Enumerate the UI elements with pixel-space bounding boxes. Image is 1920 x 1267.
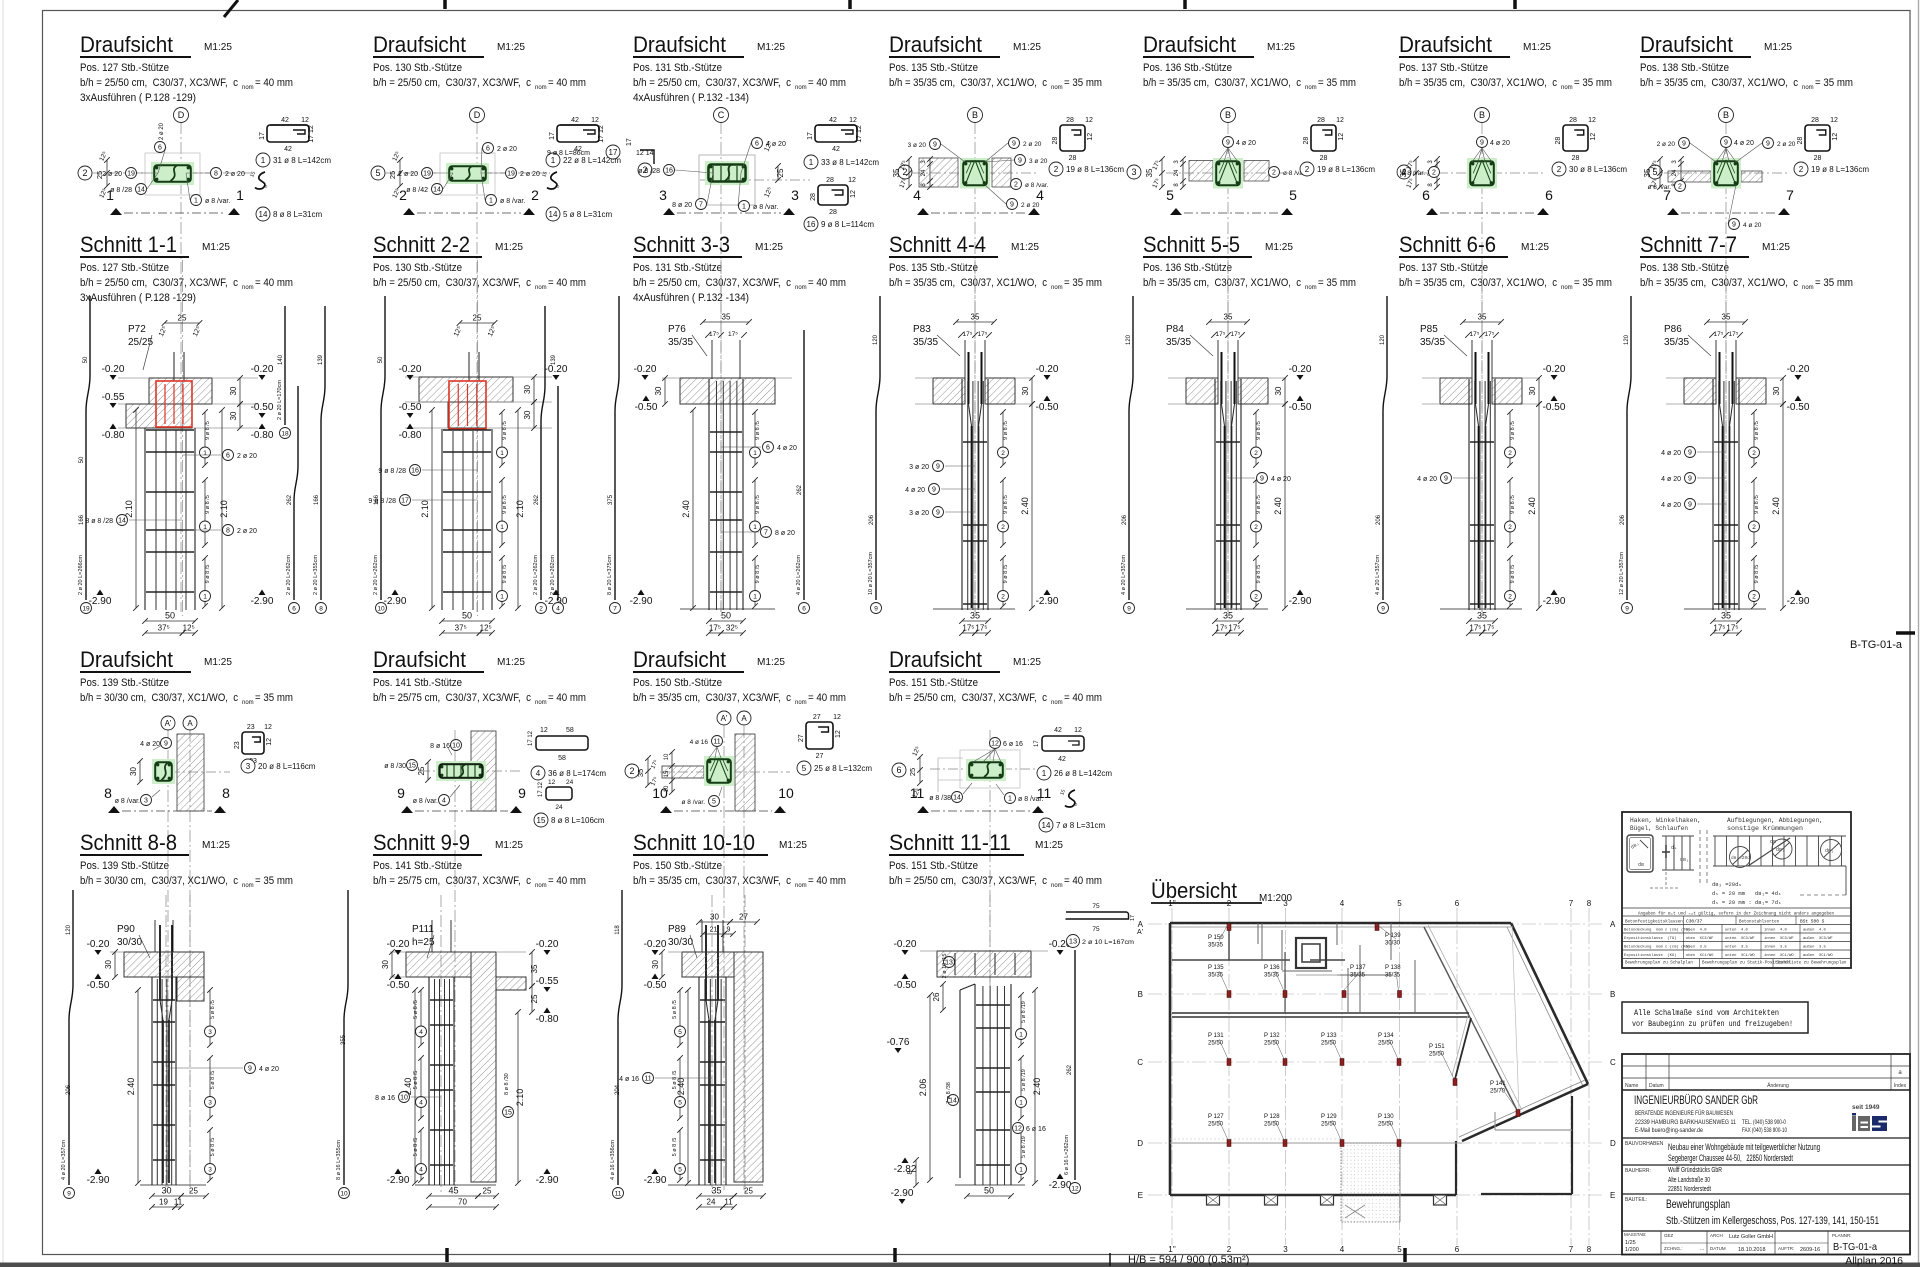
svg-text:24: 24 [921,169,927,176]
svg-text:17⁵: 17⁵ [1714,331,1724,338]
svg-text:vor Baubeginn zu prüfen und fr: vor Baubeginn zu prüfen und freizugeben! [1632,1019,1793,1029]
svg-text:118: 118 [615,925,621,935]
svg-text:30 ø 8 L=136cm: 30 ø 8 L=136cm [1569,165,1627,174]
svg-text:9: 9 [1226,139,1230,146]
svg-text:9: 9 [1010,201,1014,208]
svg-text:30: 30 [161,1186,171,1196]
svg-text:9: 9 [1682,140,1686,147]
svg-text:2: 2 [1254,524,1258,531]
svg-text:-0.80: -0.80 [536,1014,559,1025]
svg-text:25: 25 [388,171,397,179]
svg-text:11: 11 [713,738,720,745]
svg-text:außen 4.0: außen 4.0 [1803,928,1827,933]
svg-text:12: 12 [548,779,556,786]
svg-text:-0.80: -0.80 [251,430,274,441]
svg-text:12: 12 [266,738,273,746]
svg-text:45: 45 [448,1186,458,1196]
svg-text:-2.90: -2.90 [1036,596,1059,607]
svg-text:8 ø 8 /28: 8 ø 8 /28 [85,518,113,525]
svg-text:Pos. 135 Stb.-Stütze: Pos. 135 Stb.-Stütze [889,262,978,274]
svg-text:5 ø 8 /5: 5 ø 8 /5 [672,1000,678,1019]
svg-text:Betondeckung nom c (cm) (KG): Betondeckung nom c (cm) (KG) [1624,945,1690,950]
svg-text:ø 8 /var.: ø 8 /var. [500,198,525,205]
svg-text:2: 2 [1001,524,1005,531]
svg-text:2 ø 20: 2 ø 20 [102,171,122,178]
svg-text:17: 17 [807,132,814,140]
svg-text:18: 18 [281,430,289,437]
svg-text:28: 28 [810,193,817,201]
svg-text:1: 1 [753,593,757,600]
svg-text:DATUM: DATUM [1710,1246,1726,1251]
svg-text:M1:25: M1:25 [497,656,525,668]
svg-text:12: 12 [1071,1185,1079,1192]
svg-text:6: 6 [755,140,759,147]
svg-text:9 ø 8 /5: 9 ø 8 /5 [205,565,211,584]
svg-text:4 ø 20: 4 ø 20 [1734,140,1754,147]
svg-text:5 ø 8 /19: 5 ø 8 /19 [1021,1069,1027,1091]
svg-text:7 ø 8 /38: 7 ø 8 /38 [946,1082,952,1104]
svg-text:35: 35 [1477,611,1487,621]
svg-text:C: C [718,110,725,120]
svg-text:nom: nom [242,85,254,91]
svg-text:D: D [474,110,481,120]
svg-text:4 ø 20 L=357cm: 4 ø 20 L=357cm [61,1140,67,1180]
svg-text:PLANNR:: PLANNR: [1832,1233,1852,1238]
svg-text:25/50: 25/50 [1264,1041,1280,1047]
svg-text:Pos. 151 Stb.-Stütze: Pos. 151 Stb.-Stütze [889,860,978,872]
svg-text:unten XC3/WF: unten XC3/WF [1725,936,1755,941]
svg-text:42: 42 [281,117,289,124]
svg-text:Übersicht: Übersicht [1151,878,1237,903]
svg-text:21: 21 [710,927,718,934]
svg-text:58: 58 [566,727,574,734]
svg-text:12: 12 [1336,117,1344,124]
svg-text:8: 8 [1587,899,1592,908]
svg-text:2 ø 20: 2 ø 20 [159,122,165,140]
svg-text:17: 17 [1130,915,1136,921]
svg-text:-2.90: -2.90 [251,596,274,607]
svg-text:12⁵: 12⁵ [183,624,195,633]
svg-text:2: 2 [1254,450,1258,457]
svg-text:9: 9 [1688,475,1692,482]
svg-text:BAUHERR:: BAUHERR: [1625,1168,1651,1174]
svg-text:-0.20: -0.20 [634,364,657,375]
svg-text:b/h = 25/50 cm, C30/37, XC3/W: b/h = 25/50 cm, C30/37, XC3/WF, c [80,77,238,89]
svg-text:6: 6 [226,452,230,459]
svg-text:9 ø 8 /5: 9 ø 8 /5 [1003,565,1009,584]
svg-text:5: 5 [1289,187,1297,203]
svg-text:25/50: 25/50 [1378,1041,1394,1047]
svg-text:2 ø 20 L=355cm: 2 ø 20 L=355cm [313,555,319,595]
svg-text:P 141: P 141 [1490,1081,1506,1087]
svg-text:4 ø 20: 4 ø 20 [1271,476,1291,483]
svg-text:17⁵: 17⁵ [975,624,987,633]
svg-text:11: 11 [724,1198,733,1207]
svg-text:b/h = 35/35 cm, C30/37, XC1/W: b/h = 35/35 cm, C30/37, XC1/WO, c [1399,77,1557,89]
svg-text:17⁵: 17⁵ [728,331,738,338]
svg-text:8: 8 [214,170,218,177]
svg-text:23: 23 [247,724,255,731]
svg-text:28: 28 [1320,155,1328,162]
svg-text:Schnitt 2-2: Schnitt 2-2 [373,232,470,257]
svg-text:= 35 mm: = 35 mm [1064,77,1102,89]
svg-text:10: 10 [452,742,460,749]
svg-text:9: 9 [1480,139,1484,146]
svg-text:dʙ: dʙ [1638,862,1644,868]
svg-text:innen 3.5: innen 3.5 [1764,945,1788,950]
svg-text:12: 12 [1014,1125,1022,1132]
svg-text:BSt 500 S: BSt 500 S [1800,919,1825,925]
svg-text:10: 10 [664,753,670,760]
svg-text:Wulff Gründstücks GbR: Wulff Gründstücks GbR [1668,1165,1722,1174]
svg-text:12: 12 [1074,727,1082,734]
svg-text:2 ø 20: 2 ø 20 [398,171,418,178]
svg-text:1: 1 [261,156,266,165]
svg-text:ø 8 /var.: ø 8 /var. [413,798,438,805]
svg-text:7: 7 [699,201,703,208]
svg-text:Pos. 139 Stb.-Stütze: Pos. 139 Stb.-Stütze [80,677,169,689]
svg-text:B: B [1723,110,1729,120]
svg-text:b/h = 30/30 cm, C30/37, XC1/W: b/h = 30/30 cm, C30/37, XC1/WO, c [80,692,238,704]
svg-text:Draufsicht: Draufsicht [889,647,982,672]
svg-text:unten XC1/WO: unten XC1/WO [1725,953,1755,958]
svg-text:3 ø 20: 3 ø 20 [1029,158,1048,165]
svg-text:9 ø 8 /5: 9 ø 8 /5 [502,565,508,584]
svg-text:P83: P83 [913,324,931,335]
svg-text:-2.90: -2.90 [87,1175,110,1186]
svg-text:5 ø 8 /5: 5 ø 8 /5 [672,1138,678,1157]
svg-text:Pos. 131 Stb.-Stütze: Pos. 131 Stb.-Stütze [633,62,722,74]
svg-text:E-Mail buero@ing-sander.de: E-Mail buero@ing-sander.de [1635,1128,1704,1134]
svg-text:10: 10 [340,1190,348,1197]
svg-text:12: 12 [1085,117,1093,124]
svg-text:1: 1 [1019,1166,1023,1173]
svg-text:M1:25: M1:25 [497,41,525,53]
svg-text:4xAusführen ( P.132 -134): 4xAusführen ( P.132 -134) [633,292,749,304]
svg-text:17⁵: 17⁵ [978,331,988,338]
svg-text:9 ø 8 /5: 9 ø 8 /5 [1510,495,1516,514]
svg-text:3: 3 [791,187,799,203]
svg-text:2.40: 2.40 [126,1078,136,1096]
svg-text:6: 6 [1545,187,1553,203]
svg-text:Stahlliste zu Bewehrungsplan: Stahlliste zu Bewehrungsplan [1776,961,1847,966]
svg-text:30: 30 [381,960,390,969]
svg-text:9: 9 [397,785,405,801]
svg-text:25: 25 [744,1187,753,1196]
svg-text:35/35: 35/35 [1664,337,1689,348]
svg-text:24: 24 [566,779,574,786]
svg-text:19: 19 [423,170,431,177]
svg-text:= 40 mm: = 40 mm [255,77,293,89]
svg-text:AUFTR:: AUFTR: [1778,1246,1794,1251]
svg-text:P 128: P 128 [1264,1114,1280,1120]
svg-text:2 ø 20: 2 ø 20 [1657,141,1676,148]
svg-text:4 ø 20: 4 ø 20 [1490,140,1510,147]
svg-text:24: 24 [1672,169,1678,176]
svg-text:9 ø 8 /5: 9 ø 8 /5 [1003,495,1009,514]
svg-text:Bewehrungsplan zu Schalplan: Bewehrungsplan zu Schalplan [1625,961,1693,966]
svg-text:35: 35 [1722,313,1731,322]
svg-text:dʙ: dʙ [1770,839,1776,845]
svg-text:TEL. (040) 538 900-0: TEL. (040) 538 900-0 [1742,1120,1787,1126]
svg-text:9: 9 [936,509,940,516]
svg-text:= 35 mm: = 35 mm [255,875,293,887]
svg-text:1: 1 [194,197,198,204]
svg-text:9: 9 [1381,605,1385,612]
svg-text:ZCHNG.:: ZCHNG.: [1664,1246,1683,1251]
svg-text:A: A [741,714,747,723]
svg-text:262: 262 [287,494,293,505]
svg-text:120: 120 [1624,334,1630,345]
svg-text:oben XC3/WF: oben XC3/WF [1686,936,1714,941]
svg-text:innen XC1/WO: innen XC1/WO [1764,953,1794,958]
svg-text:17⁵: 17⁵ [1729,331,1739,338]
svg-text:6: 6 [1422,187,1430,203]
svg-text:5 ø 8 /5: 5 ø 8 /5 [413,1000,419,1019]
svg-text:35/35: 35/35 [1208,943,1224,949]
svg-text:5: 5 [1397,1245,1402,1254]
svg-text:3xAusführen ( P.128 -129): 3xAusführen ( P.128 -129) [80,92,196,104]
svg-text:9: 9 [1444,475,1448,482]
svg-text:P90: P90 [117,924,135,935]
svg-text:4 ø 20: 4 ø 20 [1743,222,1762,229]
svg-text:= 35 mm: = 35 mm [1318,277,1356,289]
svg-text:4xAusführen ( P.132 -134): 4xAusführen ( P.132 -134) [633,92,749,104]
svg-text:1: 1 [236,187,244,203]
svg-text:10: 10 [400,1094,408,1101]
svg-text:2: 2 [1227,899,1232,908]
svg-text:33 ø 8 L=142cm: 33 ø 8 L=142cm [821,158,879,167]
svg-text:ø 8 /var.: ø 8 /var. [115,798,140,805]
svg-text:12: 12 [264,724,272,731]
svg-text:-2.90: -2.90 [891,1188,914,1199]
svg-text:7 ø 8 L=31cm: 7 ø 8 L=31cm [1056,821,1105,830]
svg-text:Schnitt 6-6: Schnitt 6-6 [1399,232,1496,257]
svg-text:B-TG-01-a: B-TG-01-a [1833,1241,1877,1253]
svg-text:= 40 mm: = 40 mm [548,277,586,289]
svg-text:nom: nom [535,883,547,889]
svg-text:206: 206 [1122,514,1128,525]
svg-text:-0.50: -0.50 [251,402,274,413]
svg-text:2: 2 [1054,165,1059,174]
svg-text:8 ø 16: 8 ø 16 [430,743,450,750]
svg-text:M1:25: M1:25 [204,41,232,53]
svg-text:9: 9 [518,785,526,801]
svg-text:12 14: 12 14 [636,150,654,157]
svg-text:2.40: 2.40 [681,500,691,518]
svg-text:außen 3.5: außen 3.5 [1803,945,1827,950]
svg-text:17⁵: 17⁵ [1231,331,1241,338]
svg-text:16: 16 [411,467,419,474]
svg-text:17 12: 17 12 [308,125,315,143]
svg-text:4: 4 [419,1029,423,1036]
svg-text:50: 50 [79,456,85,463]
svg-text:Pos. 127 Stb.-Stütze: Pos. 127 Stb.-Stütze [80,262,169,274]
svg-text:-2.90: -2.90 [384,596,407,607]
svg-text:25/50: 25/50 [1208,1122,1224,1128]
svg-text:35/35: 35/35 [1264,973,1280,979]
svg-text:Segeberger Chaussee 44-50, 2: Segeberger Chaussee 44-50, 22850 Norders… [1668,1153,1793,1163]
svg-text:3: 3 [208,1166,212,1173]
svg-text:2: 2 [1508,524,1512,531]
svg-text:ø 8 /var.: ø 8 /var. [682,799,706,806]
svg-text:30: 30 [710,913,719,922]
svg-text:1: 1 [1008,795,1012,802]
svg-text:4: 4 [442,797,446,804]
svg-text:-0.50: -0.50 [87,980,110,991]
svg-text:2: 2 [1014,181,1018,188]
svg-text:unten 4.0: unten 4.0 [1725,929,1749,933]
svg-text:17⁵: 17⁵ [1713,624,1725,633]
svg-text:nom: nom [795,700,807,706]
svg-text:b/h = 35/35 cm, C30/37, XC1/W: b/h = 35/35 cm, C30/37, XC1/WO, c [889,277,1047,289]
svg-text:M1:25: M1:25 [1011,241,1039,253]
svg-text:9: 9 [933,141,937,148]
svg-text:nom: nom [1305,85,1317,91]
svg-text:P 137: P 137 [1350,965,1366,971]
svg-text:BAUVORHABEN: BAUVORHABEN [1625,1141,1664,1147]
svg-text:9: 9 [1724,139,1728,146]
svg-text:8: 8 [226,527,230,534]
svg-text:28: 28 [1572,155,1580,162]
svg-text:9: 9 [67,1190,71,1197]
svg-text:Draufsicht: Draufsicht [889,32,982,57]
svg-text:Pos. 127 Stb.-Stütze: Pos. 127 Stb.-Stütze [80,62,169,74]
svg-text:Schnitt 10-10: Schnitt 10-10 [633,830,755,855]
svg-text:nom: nom [1051,700,1063,706]
svg-text:12: 12 [835,730,842,738]
svg-text:M1:25: M1:25 [1762,241,1790,253]
svg-text:-2.90: -2.90 [630,596,653,607]
svg-text:9 ø 8 /28: 9 ø 8 /28 [368,498,396,505]
svg-text:35/35: 35/35 [1350,973,1366,979]
svg-text:120: 120 [66,924,72,935]
svg-text:M1:25: M1:25 [779,839,807,851]
svg-text:b/h = 35/35 cm, C30/37, XC3/W: b/h = 35/35 cm, C30/37, XC3/WF, c [633,692,791,704]
svg-text:5: 5 [678,1029,682,1036]
svg-text:28: 28 [1317,117,1325,124]
svg-text:15: 15 [408,762,416,769]
svg-text:MASSTAB:: MASSTAB: [1624,1232,1646,1237]
svg-text:D: D [178,110,185,120]
svg-text:Draufsicht: Draufsicht [373,647,466,672]
svg-text:9 ø 8 L=86cm: 9 ø 8 L=86cm [547,150,590,157]
svg-text:Alte Landstraße 30: Alte Landstraße 30 [1668,1175,1710,1184]
svg-text:3xAusführen ( P.128 -129): 3xAusführen ( P.128 -129) [80,292,196,304]
svg-text:6: 6 [766,444,770,451]
svg-text:B: B [1479,110,1485,120]
svg-text:4 ø 20: 4 ø 20 [777,445,797,452]
svg-text:M1:25: M1:25 [495,241,523,253]
svg-text:1: 1 [500,450,504,457]
svg-text:35: 35 [711,1186,721,1196]
svg-text:30: 30 [229,386,238,395]
svg-text:2: 2 [399,187,407,203]
svg-text:4 ø 16 L=356cm: 4 ø 16 L=356cm [610,1140,616,1180]
svg-text:Bügel, Schlaufen: Bügel, Schlaufen [1630,825,1688,832]
svg-text:Draufsicht: Draufsicht [1640,32,1733,57]
svg-text:oben 3.5: oben 3.5 [1686,945,1707,950]
svg-text:5 ø 8 /19: 5 ø 8 /19 [1021,1136,1027,1158]
svg-text:17⁵: 17⁵ [962,624,974,633]
svg-text:2 ø 20 L=262cm: 2 ø 20 L=262cm [550,555,556,595]
svg-text:4 ø 20: 4 ø 20 [1417,476,1437,483]
svg-text:2 ø 20: 2 ø 20 [1021,202,1040,209]
svg-text:= 35 mm: = 35 mm [1318,77,1356,89]
svg-text:-0.20: -0.20 [87,939,110,950]
svg-text:35: 35 [1721,611,1731,621]
svg-text:17⁵: 17⁵ [1485,331,1495,338]
svg-text:-0.20: -0.20 [399,364,422,375]
svg-text:11: 11 [615,1190,622,1197]
svg-text:35: 35 [1224,313,1233,322]
svg-text:6 ø 16: 6 ø 16 [1003,741,1023,748]
svg-text:b/h = 25/50 cm, C30/37, XC3/W: b/h = 25/50 cm, C30/37, XC3/WF, c [633,77,791,89]
svg-text:30: 30 [129,767,138,776]
svg-text:28: 28 [1069,155,1077,162]
svg-text:-0.50: -0.50 [387,980,410,991]
svg-text:Pos. 150 Stb.-Stütze: Pos. 150 Stb.-Stütze [633,677,722,689]
svg-text:4 ø 20: 4 ø 20 [140,741,160,748]
svg-text:A: A [1610,920,1616,929]
svg-text:27: 27 [739,913,748,922]
svg-text:Expositionsklasse (TG): Expositionsklasse (TG) [1624,936,1676,941]
svg-text:GEZ: GEZ [1664,1233,1674,1238]
svg-text:2609-16: 2609-16 [1800,1247,1820,1253]
svg-text:5 ø 8 /5: 5 ø 8 /5 [413,1138,419,1157]
svg-text:42: 42 [829,117,837,124]
svg-text:-0.20: -0.20 [1543,364,1566,375]
svg-text:166: 166 [374,494,380,505]
svg-text:4 ø 20: 4 ø 20 [1236,140,1256,147]
svg-text:...: ... [1700,1246,1704,1252]
svg-text:12: 12 [848,177,856,184]
svg-text:8: 8 [104,785,112,801]
svg-text:-0.20: -0.20 [102,364,125,375]
svg-text:A: A [1138,920,1144,929]
svg-text:= 40 mm: = 40 mm [808,77,846,89]
svg-text:2: 2 [1508,593,1512,600]
svg-text:b/h = 25/50 cm, C30/37, XC3/W: b/h = 25/50 cm, C30/37, XC3/WF, c [889,875,1047,887]
svg-text:P 133: P 133 [1321,1033,1337,1039]
svg-text:P111: P111 [412,924,434,935]
svg-text:12: 12 [1832,133,1839,141]
svg-text:außen XC1/WO: außen XC1/WO [1803,953,1833,958]
svg-text:ø 8 /var.: ø 8 /var. [1402,170,1426,177]
svg-text:166: 166 [314,494,320,505]
svg-text:25 ø 8 L=132cm: 25 ø 8 L=132cm [814,764,872,773]
svg-text:nom: nom [1561,85,1573,91]
svg-text:9: 9 [874,605,878,612]
svg-text:9: 9 [1688,449,1692,456]
svg-text:9 ø 8 /5: 9 ø 8 /5 [205,421,211,440]
svg-text:M1:25: M1:25 [1035,839,1063,851]
svg-text:7: 7 [1569,1245,1574,1254]
svg-text:5: 5 [712,798,716,805]
svg-text:8: 8 [1587,1245,1592,1254]
svg-text:17: 17 [1034,740,1040,747]
svg-text:außen XC3/WF: außen XC3/WF [1803,936,1833,941]
svg-text:42: 42 [1054,727,1062,734]
svg-text:5 ø 8 /5: 5 ø 8 /5 [210,1000,216,1019]
svg-text:dₛ = 20 mm : dʙ₁= 7dₛ: dₛ = 20 mm : dʙ₁= 7dₛ [1712,899,1781,906]
svg-text:17: 17 [609,148,618,157]
svg-text:4: 4 [419,1166,423,1173]
svg-text:18.10.2018: 18.10.2018 [1738,1247,1766,1253]
svg-text:70: 70 [458,1198,467,1207]
svg-text:30: 30 [1274,386,1283,395]
svg-text:2 ø 20 L=262cm: 2 ø 20 L=262cm [286,555,292,595]
